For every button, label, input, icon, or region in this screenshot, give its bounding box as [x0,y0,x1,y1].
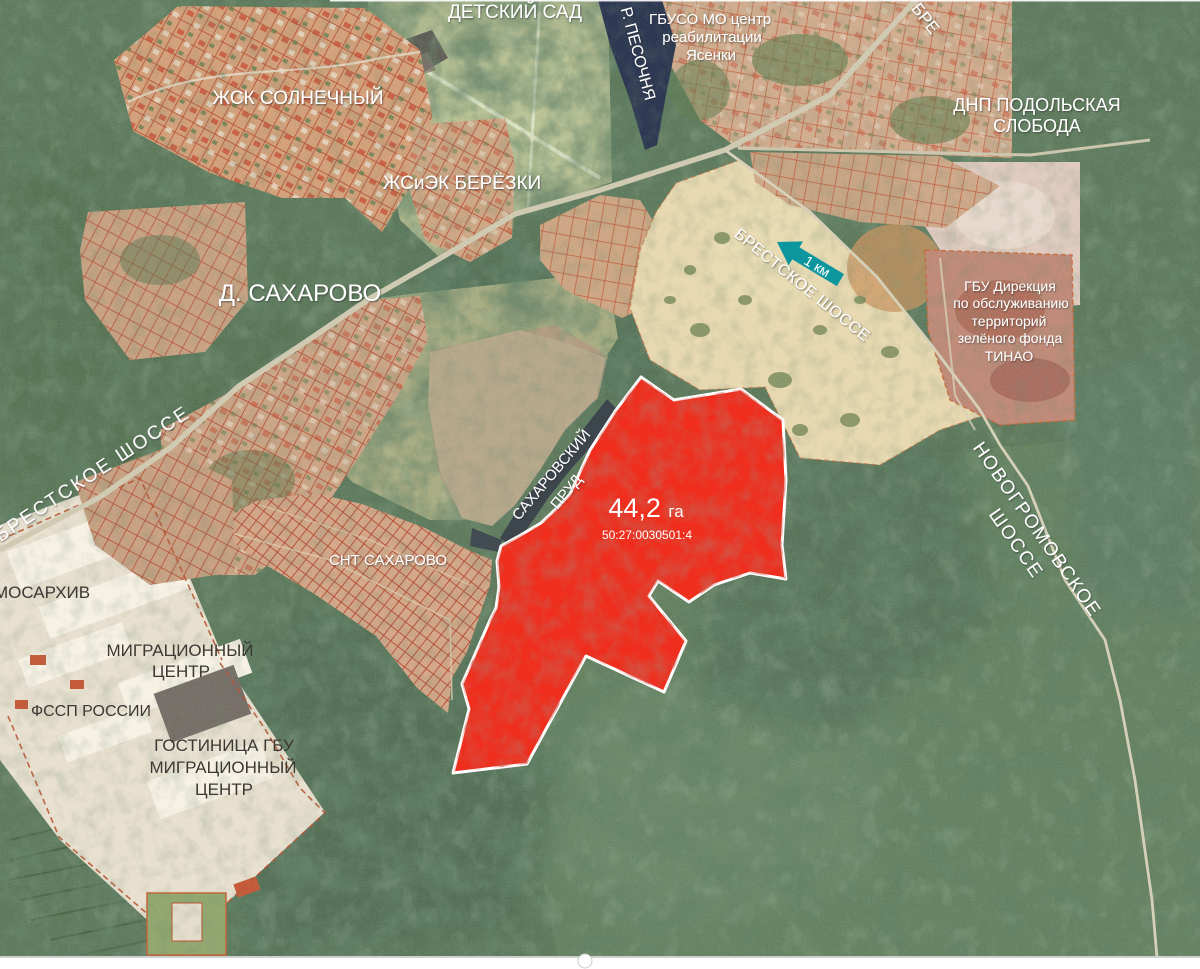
svg-text:50:27:0030501:4: 50:27:0030501:4 [602,528,692,542]
svg-text:ЦЕНТР: ЦЕНТР [152,662,210,681]
svg-text:по обслуживанию: по обслуживанию [953,295,1069,311]
svg-text:Ясенки: Ясенки [686,47,736,64]
svg-text:МОСАРХИВ: МОСАРХИВ [0,583,90,602]
svg-text:ГБУСО МО центр: ГБУСО МО центр [649,11,771,28]
svg-text:реабилитации: реабилитации [662,29,762,46]
svg-text:СЛОБОДА: СЛОБОДА [993,116,1081,136]
svg-text:Д. САХАРОВО: Д. САХАРОВО [219,280,381,307]
svg-text:ДЕТСКИЙ САД: ДЕТСКИЙ САД [448,1,582,23]
svg-text:ДНП ПОДОЛЬСКАЯ: ДНП ПОДОЛЬСКАЯ [953,95,1120,115]
svg-text:территорий: территорий [972,313,1047,329]
svg-text:ЦЕНТР: ЦЕНТР [195,780,253,799]
svg-text:ЖСиЭК БЕРЁЗКИ: ЖСиЭК БЕРЁЗКИ [383,173,541,194]
svg-text:ГБУ Дирекция: ГБУ Дирекция [964,278,1056,294]
svg-text:СНТ САХАРОВО: СНТ САХАРОВО [329,552,447,569]
svg-text:зелёного фонда: зелёного фонда [958,330,1063,346]
svg-text:МИГРАЦИОННЫЙ: МИГРАЦИОННЫЙ [107,641,254,660]
svg-text:ГОСТИНИЦА ГБУ: ГОСТИНИЦА ГБУ [154,736,294,755]
svg-text:МИГРАЦИОННЫЙ: МИГРАЦИОННЫЙ [150,758,297,777]
svg-text:ЖСК СОЛНЕЧНЫЙ: ЖСК СОЛНЕЧНЫЙ [213,87,384,109]
svg-text:ФССП РОССИИ: ФССП РОССИИ [31,703,151,720]
svg-text:ТИНАО: ТИНАО [985,348,1034,364]
